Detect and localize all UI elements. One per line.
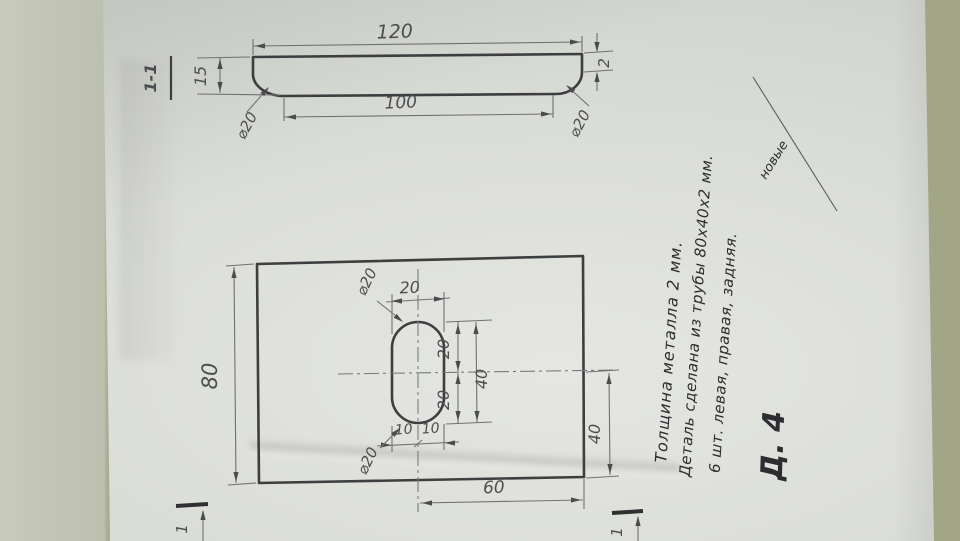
section-label: 1-1 — [141, 56, 171, 100]
section-view: 120 100 15 — [141, 20, 613, 142]
dim-slot-lower-half-label: 20 — [434, 390, 453, 410]
plan-view: 80 20 20 20 — [173, 256, 643, 541]
photo-canvas: 120 100 15 — [0, 0, 960, 541]
section-label-text: 1-1 — [141, 64, 160, 93]
callout-slot-radius-bottom: ⌀20 — [353, 428, 400, 477]
signature-block: новые — [753, 77, 837, 211]
section-mark-right-label: 1 — [608, 527, 626, 537]
check-line — [753, 77, 837, 211]
dim-slot-radius-bottom-label: ⌀20 — [353, 444, 382, 477]
callout-fillet-left: ⌀20 — [232, 87, 269, 142]
section-cut-mark-left: 1 — [173, 504, 208, 541]
dim-slot-length: 40 — [472, 322, 491, 423]
dim-slot-length-label: 40 — [472, 369, 491, 389]
signature-text: новые — [756, 138, 791, 182]
callout-fillet-right: ⌀20 — [565, 85, 594, 140]
note-line-3: 6 шт. левая, правая, задняя. — [706, 232, 741, 474]
dim-center-to-right: 60 — [420, 478, 584, 509]
dim-slot-radius-top-label: ⌀20 — [352, 265, 381, 298]
callout-slot-radius-top: ⌀20 — [352, 265, 403, 322]
section-cut-mark-right: 1 — [608, 511, 643, 541]
dim-slot-width-label: 20 — [399, 277, 420, 297]
dim-center-to-bottom: 40 — [585, 370, 619, 478]
dim-thickness: 2 — [584, 33, 613, 91]
dim-slot-upper-half-label: 20 — [434, 339, 453, 359]
dim-center-to-right-label: 60 — [483, 478, 505, 499]
dim-plate-height-label: 80 — [198, 363, 222, 390]
dim-fillet-left-label: ⌀20 — [232, 109, 261, 142]
notes-block: Толщина металла 2 мм. Деталь сделана из … — [651, 154, 792, 482]
dim-half-right-label: 10 — [421, 420, 440, 437]
plate-outline — [257, 256, 584, 483]
dim-thickness-label: 2 — [595, 58, 613, 68]
dim-center-to-bottom-label: 40 — [585, 424, 604, 444]
dim-overall-width-label: 120 — [376, 20, 413, 43]
dim-overall-width: 120 — [253, 20, 582, 55]
dim-fillet-right-label: ⌀20 — [565, 107, 594, 140]
part-number-label: Д. 4 — [755, 410, 792, 482]
dim-height-label: 15 — [191, 66, 210, 86]
technical-drawing: 120 100 15 — [0, 0, 960, 541]
section-outline — [253, 54, 582, 96]
dim-plate-height: 80 — [198, 264, 256, 485]
section-mark-left-label: 1 — [173, 524, 191, 534]
dim-inner-width-label: 100 — [384, 92, 417, 113]
